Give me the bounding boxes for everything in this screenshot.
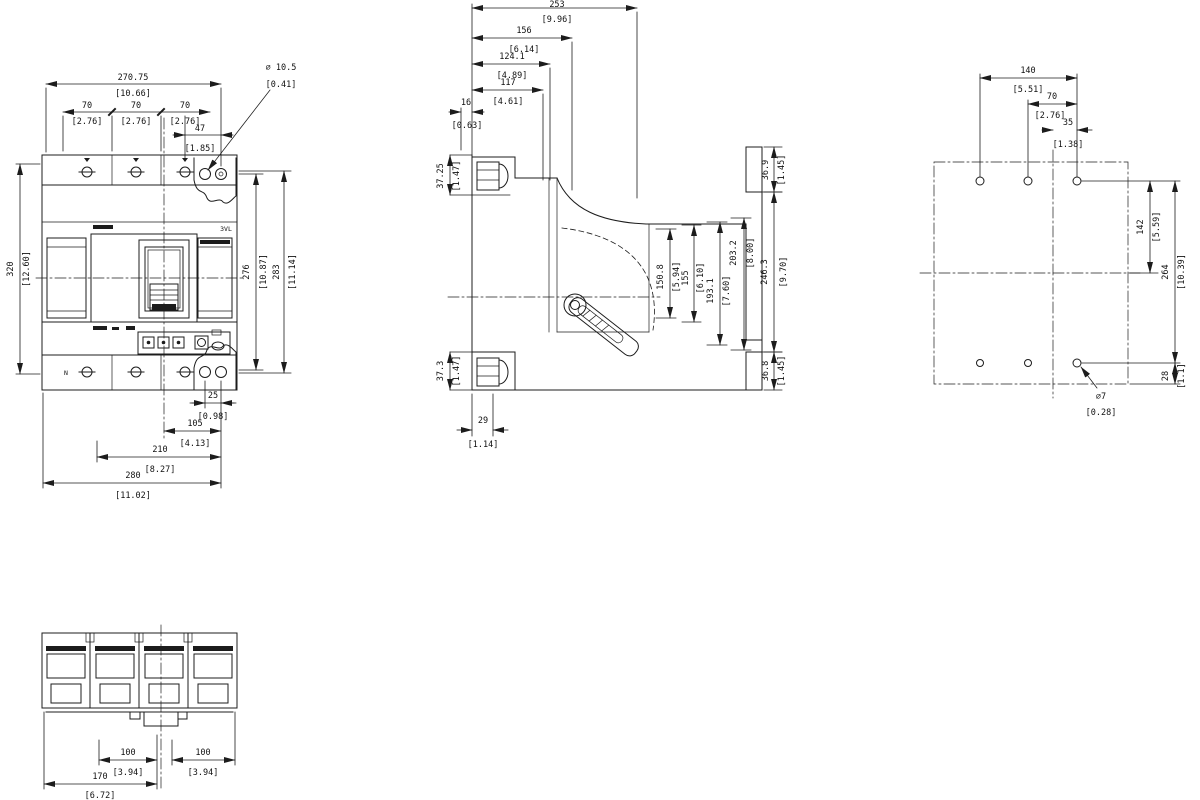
dim-right-stack: 36.9 [1.45] 246.3 [9.70] 36.8 [1.45] [760, 147, 789, 390]
dim-142-in: [5.59] [1152, 212, 1162, 243]
dim-2032: 203.2 [8.00] [729, 218, 756, 350]
dim-283-mm: 283 [272, 264, 282, 279]
dim-hole-offset-in: [1.85] [185, 144, 216, 154]
dim-280-mm: 280 [125, 471, 140, 481]
mounting-hole [216, 169, 227, 180]
dim-pitch-mm: 70 [82, 101, 92, 111]
mounting-view: 140 [5.51] 70 [2.76] 35 [1.38] 142 [5.59… [920, 66, 1187, 418]
dim-29-mm: 29 [478, 416, 488, 426]
dim-100-mm: 100 [195, 748, 210, 758]
dim-117-in: [4.61] [493, 97, 524, 107]
dim-height-mm: 320 [6, 261, 16, 276]
front-label-band: 3VL [93, 225, 232, 233]
dim-264-mm: 264 [1161, 264, 1171, 279]
dim-29: 29 [1.14] [457, 394, 508, 450]
bottom-view-body [42, 633, 237, 726]
dim-pitch-in: [2.76] [121, 117, 152, 127]
dim-170-mm: 170 [92, 772, 107, 782]
dim-depth-16: 16 [0.63] [449, 98, 484, 150]
dim-117-mm: 117 [500, 78, 515, 88]
dim-210-in: [8.27] [145, 465, 176, 475]
dim-height-276: 276 [10.87] [239, 174, 269, 370]
dim-210-mm: 210 [152, 445, 167, 455]
dim-1931-in: [7.60] [722, 276, 732, 307]
dim-16-in: [0.63] [452, 121, 483, 131]
dim-pitch-in: [2.76] [72, 117, 103, 127]
dim-264: 264 [10.39] [1082, 181, 1187, 363]
dim-3725-in: [1.47] [452, 161, 462, 192]
dim-70-in: [2.76] [1035, 111, 1066, 121]
dim-155: 155 [6.10] [681, 225, 706, 322]
side-rear-mounting-foot-bottom [477, 358, 508, 386]
hole-dia-mm: ⌀ 10.5 [266, 63, 297, 73]
dim-hole-offset-mm: 47 [195, 124, 205, 134]
mounting-hole [200, 169, 211, 180]
dim-1508: 150.8 [5.94] [656, 229, 682, 318]
dim-25-mm: 25 [208, 391, 218, 401]
front-bottom-terminal-screws: N [64, 367, 193, 377]
dim-170-in: [6.72] [85, 791, 116, 800]
dim-100-in: [3.94] [113, 768, 144, 778]
dim-pitch-mm: 70 [180, 101, 190, 111]
dim-pitch-mm: 70 [131, 101, 141, 111]
dim-276-mm: 276 [242, 264, 252, 279]
side-toggle-lever [562, 228, 654, 359]
dim-bottom-25: 25 [0.98] [190, 381, 236, 488]
dim-369-in: [1.45] [777, 155, 787, 186]
mounting-hole [200, 367, 211, 378]
dim-280-in: [11.02] [115, 491, 151, 501]
lever-swing-arc [562, 228, 654, 330]
front-accessory-tab-top [194, 158, 236, 203]
dim-bottom-105: 105 [4.13] [164, 419, 221, 449]
dim-29-in: [1.14] [468, 440, 499, 450]
product-label: 3VL [220, 225, 232, 233]
din-clip-tab [130, 712, 140, 719]
mounting-hole [216, 367, 227, 378]
dim-2463-mm: 246.3 [760, 259, 770, 285]
dim-156-mm: 156 [516, 26, 531, 36]
hole-dia-in: [0.41] [266, 80, 297, 90]
side-view-body [472, 155, 762, 390]
dim-3725-mm: 37.25 [436, 163, 446, 189]
dim-368-mm: 36.8 [761, 361, 771, 381]
dim-2032-in: [8.00] [746, 238, 756, 269]
dim-35-mm: 35 [1063, 118, 1073, 128]
dim-depth-156: 156 [6.14] [472, 26, 572, 190]
dim-100-right: 100 [3.94] [172, 712, 235, 778]
dim-overall-width-in: [10.66] [115, 89, 151, 99]
dim-height-320: 320 [12.60] [6, 164, 40, 374]
dim-373-in: [1.47] [452, 356, 462, 387]
dim-35-in: [1.38] [1053, 140, 1084, 150]
dim-overall-width-mm: 270.75 [118, 73, 149, 83]
callout-7mm-hole: ⌀7 [0.28] [1081, 367, 1116, 418]
dim-368-in: [1.45] [777, 356, 787, 387]
dim-100-in: [3.94] [188, 768, 219, 778]
dim-28-in: [1.1] [1177, 363, 1187, 389]
dim-foot-top: 37.25 [1.47] [436, 155, 472, 195]
dim-264-in: [10.39] [1177, 254, 1187, 290]
dim-283-in: [11.14] [288, 254, 298, 290]
dim-140-in: [5.51] [1013, 85, 1044, 95]
side-view: 253 [9.96] 156 [6.14] 124.1 [4.89] 117 [… [436, 0, 789, 450]
dim-1931-mm: 193.1 [706, 278, 716, 304]
dim-105-in: [4.13] [180, 439, 211, 449]
dimension-drawing-page: 3VL [0, 0, 1200, 800]
hole-7-mm: ⌀7 [1096, 392, 1106, 402]
dim-1508-mm: 150.8 [656, 264, 666, 290]
pole-label: N [64, 369, 68, 377]
dim-2463-in: [9.70] [779, 257, 789, 288]
dim-140-mm: 140 [1020, 66, 1035, 76]
d im-155-mm: 155 [681, 270, 691, 285]
dim-369-mm: 36.9 [761, 160, 771, 180]
dimension-drawing: 3VL [0, 0, 1200, 800]
dim-142: 142 [5.59] [1082, 181, 1180, 273]
dim-253-in: [9.96] [542, 15, 573, 25]
bottom-view: 100 [3.94] 100 [3.94] 170 [6.72] [42, 625, 237, 800]
dim-depth-124: 124.1 [4.89] [472, 52, 550, 180]
dim-70-mm: 70 [1047, 92, 1057, 102]
dim-35: 35 [1.38] [1042, 118, 1092, 150]
front-trip-unit [93, 326, 230, 354]
dim-373-mm: 37.3 [436, 361, 446, 381]
dim-142-mm: 142 [1136, 219, 1146, 234]
dim-depth-117: 117 [4.61] [472, 78, 543, 180]
dim-28: 28 [1.1] [1130, 363, 1187, 389]
front-view: 3VL [6, 63, 298, 501]
dim-foot-bottom: 37.3 [1.47] [436, 352, 477, 390]
mounting-holes [976, 177, 1081, 367]
front-top-terminal-screws [79, 158, 193, 177]
dim-height-in: [12.60] [22, 251, 32, 287]
dim-70: 70 [2.76] [1028, 92, 1077, 177]
dim-124-mm: 124.1 [499, 52, 525, 62]
dim-2032-mm: 203.2 [729, 240, 739, 266]
dim-16-mm: 16 [461, 98, 471, 108]
dim-155-in: [6.10] [696, 263, 706, 294]
dim-100-left: 100 [3.94] [99, 735, 157, 789]
dim-105-mm: 105 [187, 419, 202, 429]
hole-7-in: [0.28] [1086, 408, 1117, 418]
dim-28-mm: 28 [1161, 371, 1171, 381]
din-clip-tab [178, 712, 187, 719]
dim-170: 170 [6.72] [44, 712, 157, 800]
dim-276-in: [10.87] [259, 254, 269, 290]
dim-100-mm: 100 [120, 748, 135, 758]
dim-253-mm: 253 [549, 0, 564, 10]
